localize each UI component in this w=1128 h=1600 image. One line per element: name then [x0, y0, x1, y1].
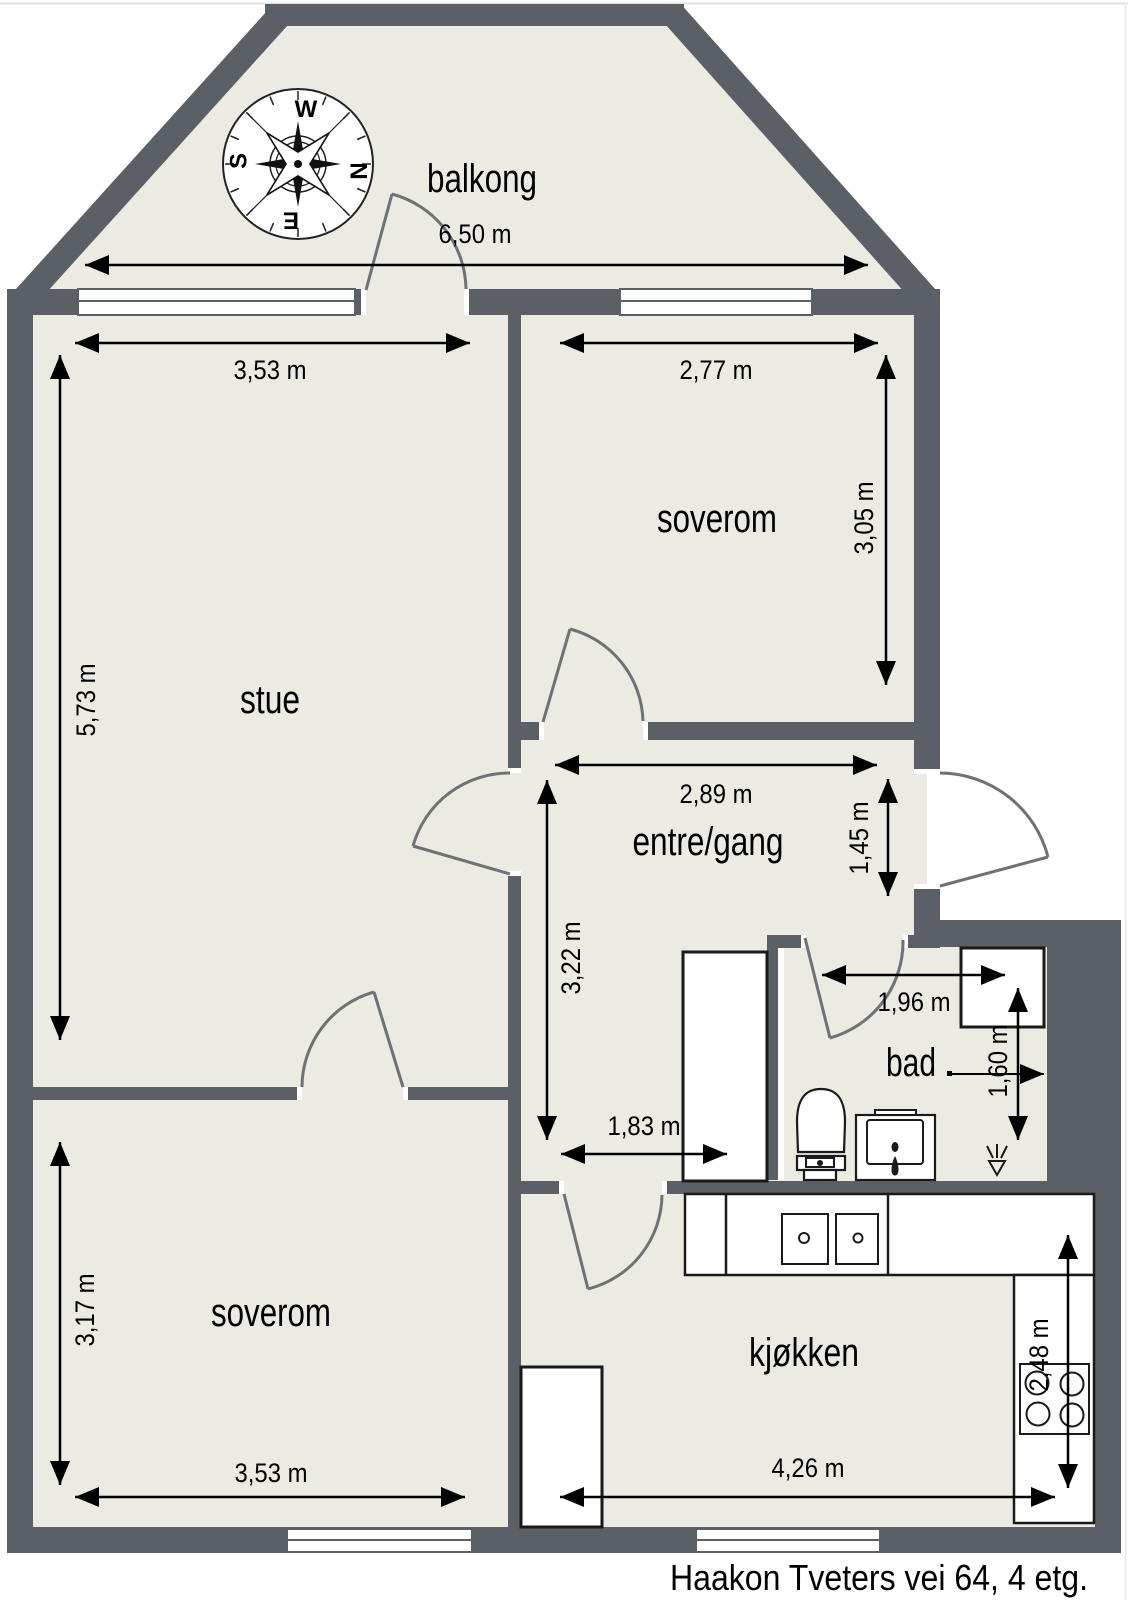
svg-text:soverom: soverom — [657, 497, 777, 541]
svg-text:1,45 m: 1,45 m — [844, 802, 874, 875]
svg-text:entre/gang: entre/gang — [633, 820, 784, 864]
svg-text:1,60 m: 1,60 m — [983, 1025, 1013, 1098]
svg-text:6,50 m: 6,50 m — [439, 219, 512, 249]
svg-text:N: N — [344, 162, 371, 179]
svg-text:kjøkken: kjøkken — [749, 1331, 859, 1375]
svg-text:4,26 m: 4,26 m — [772, 1453, 845, 1483]
svg-text:2,77 m: 2,77 m — [680, 355, 753, 385]
svg-text:2,89 m: 2,89 m — [680, 779, 753, 809]
svg-text:balkong: balkong — [427, 157, 537, 201]
svg-text:3,17 m: 3,17 m — [70, 1274, 100, 1347]
svg-text:bad: bad — [886, 1041, 936, 1085]
svg-text:soverom: soverom — [211, 1291, 331, 1335]
svg-text:E: E — [283, 206, 299, 233]
svg-text:1,96 m: 1,96 m — [878, 987, 951, 1017]
svg-text:5,73 m: 5,73 m — [71, 664, 101, 737]
svg-text:Haakon Tveters vei 64, 4 etg.: Haakon Tveters vei 64, 4 etg. — [670, 1557, 1088, 1598]
svg-text:2,48 m: 2,48 m — [1024, 1319, 1054, 1392]
svg-text:stue: stue — [240, 678, 300, 722]
svg-text:W: W — [295, 96, 318, 123]
svg-text:1,83 m: 1,83 m — [608, 1111, 681, 1141]
svg-text:S: S — [226, 153, 253, 169]
svg-text:3,05 m: 3,05 m — [849, 482, 879, 555]
svg-text:3,53 m: 3,53 m — [235, 1458, 308, 1488]
svg-text:3,53 m: 3,53 m — [234, 355, 307, 385]
svg-text:3,22 m: 3,22 m — [556, 922, 586, 995]
